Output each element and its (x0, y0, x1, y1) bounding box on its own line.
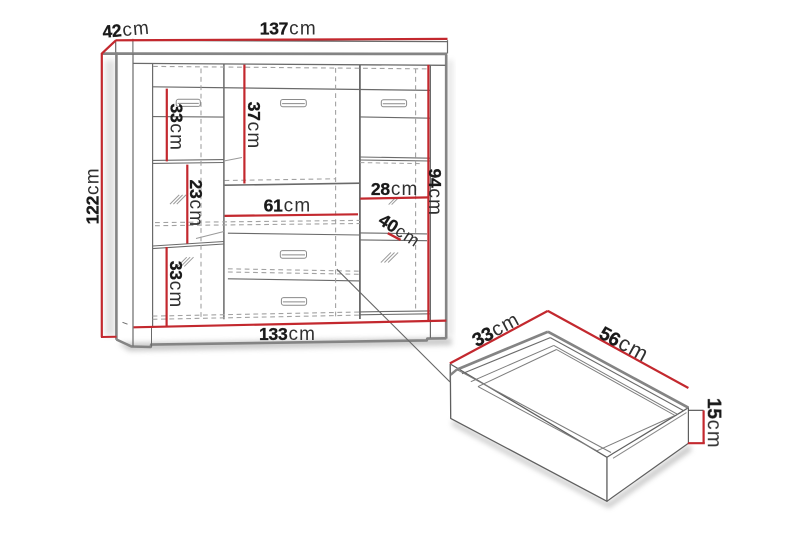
svg-text:137cm: 137cm (260, 19, 317, 40)
svg-text:15cm: 15cm (703, 398, 725, 449)
svg-text:23cm: 23cm (185, 180, 206, 228)
svg-text:28cm: 28cm (371, 179, 419, 200)
svg-text:94cm: 94cm (424, 168, 445, 216)
svg-text:61cm: 61cm (264, 195, 312, 216)
svg-text:37cm: 37cm (243, 102, 264, 150)
svg-text:122cm: 122cm (83, 167, 104, 224)
svg-text:42cm: 42cm (102, 18, 151, 43)
svg-text:33cm: 33cm (165, 261, 186, 309)
svg-text:133cm: 133cm (259, 324, 316, 345)
svg-text:33cm: 33cm (166, 103, 187, 151)
